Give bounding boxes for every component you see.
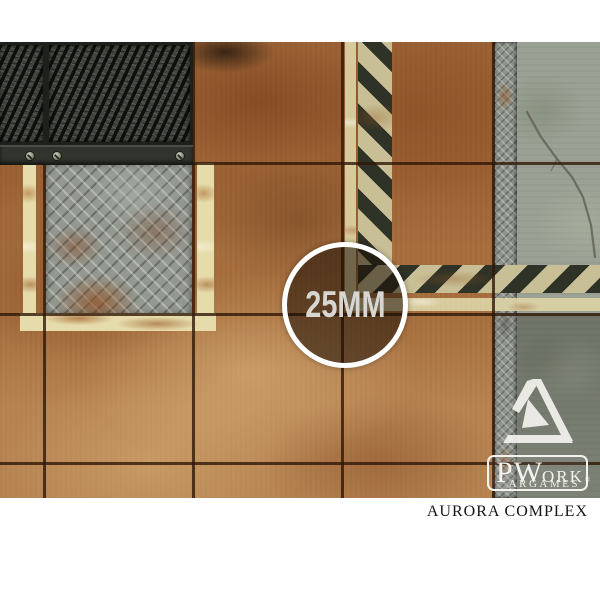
- mesh-grate-panel-right: [46, 42, 193, 145]
- concrete-crack: [517, 97, 600, 277]
- grid-line-v4: [492, 42, 495, 498]
- screw-icon: [175, 151, 185, 161]
- gaming-mat-photo: 25MM PWORK® ARGAMES: [0, 42, 600, 498]
- product-page: 25MM PWORK® ARGAMES AURORA COMPLEX: [0, 0, 600, 600]
- scale-badge-label: 25MM: [305, 284, 385, 326]
- painted-frame-left: [23, 163, 36, 315]
- logo-wargames-text: ARGAMES: [496, 479, 580, 490]
- screw-icon: [52, 151, 62, 161]
- mesh-grate-panel-left: [0, 42, 46, 145]
- registered-mark-icon: ®: [585, 477, 590, 484]
- grate-frame-bar: [0, 145, 193, 165]
- mesh-grate: [0, 42, 193, 163]
- scale-badge: 25MM: [282, 242, 408, 368]
- pwork-triangle-icon: [500, 377, 576, 445]
- diamond-plate-square: [45, 163, 192, 315]
- painted-frame-right: [197, 163, 214, 315]
- pwork-logo-box: PWORK® ARGAMES: [487, 455, 588, 491]
- screw-icon: [25, 151, 35, 161]
- product-title: AURORA COMPLEX: [427, 503, 588, 521]
